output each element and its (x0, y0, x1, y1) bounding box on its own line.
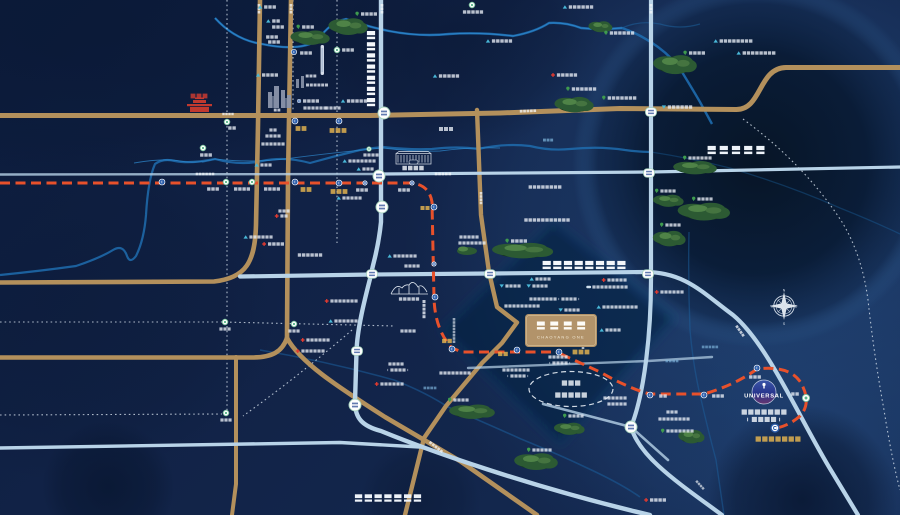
svg-text:CHAOYANG ONE: CHAOYANG ONE (537, 335, 585, 340)
svg-text:UNIVERSAL: UNIVERSAL (744, 394, 784, 400)
